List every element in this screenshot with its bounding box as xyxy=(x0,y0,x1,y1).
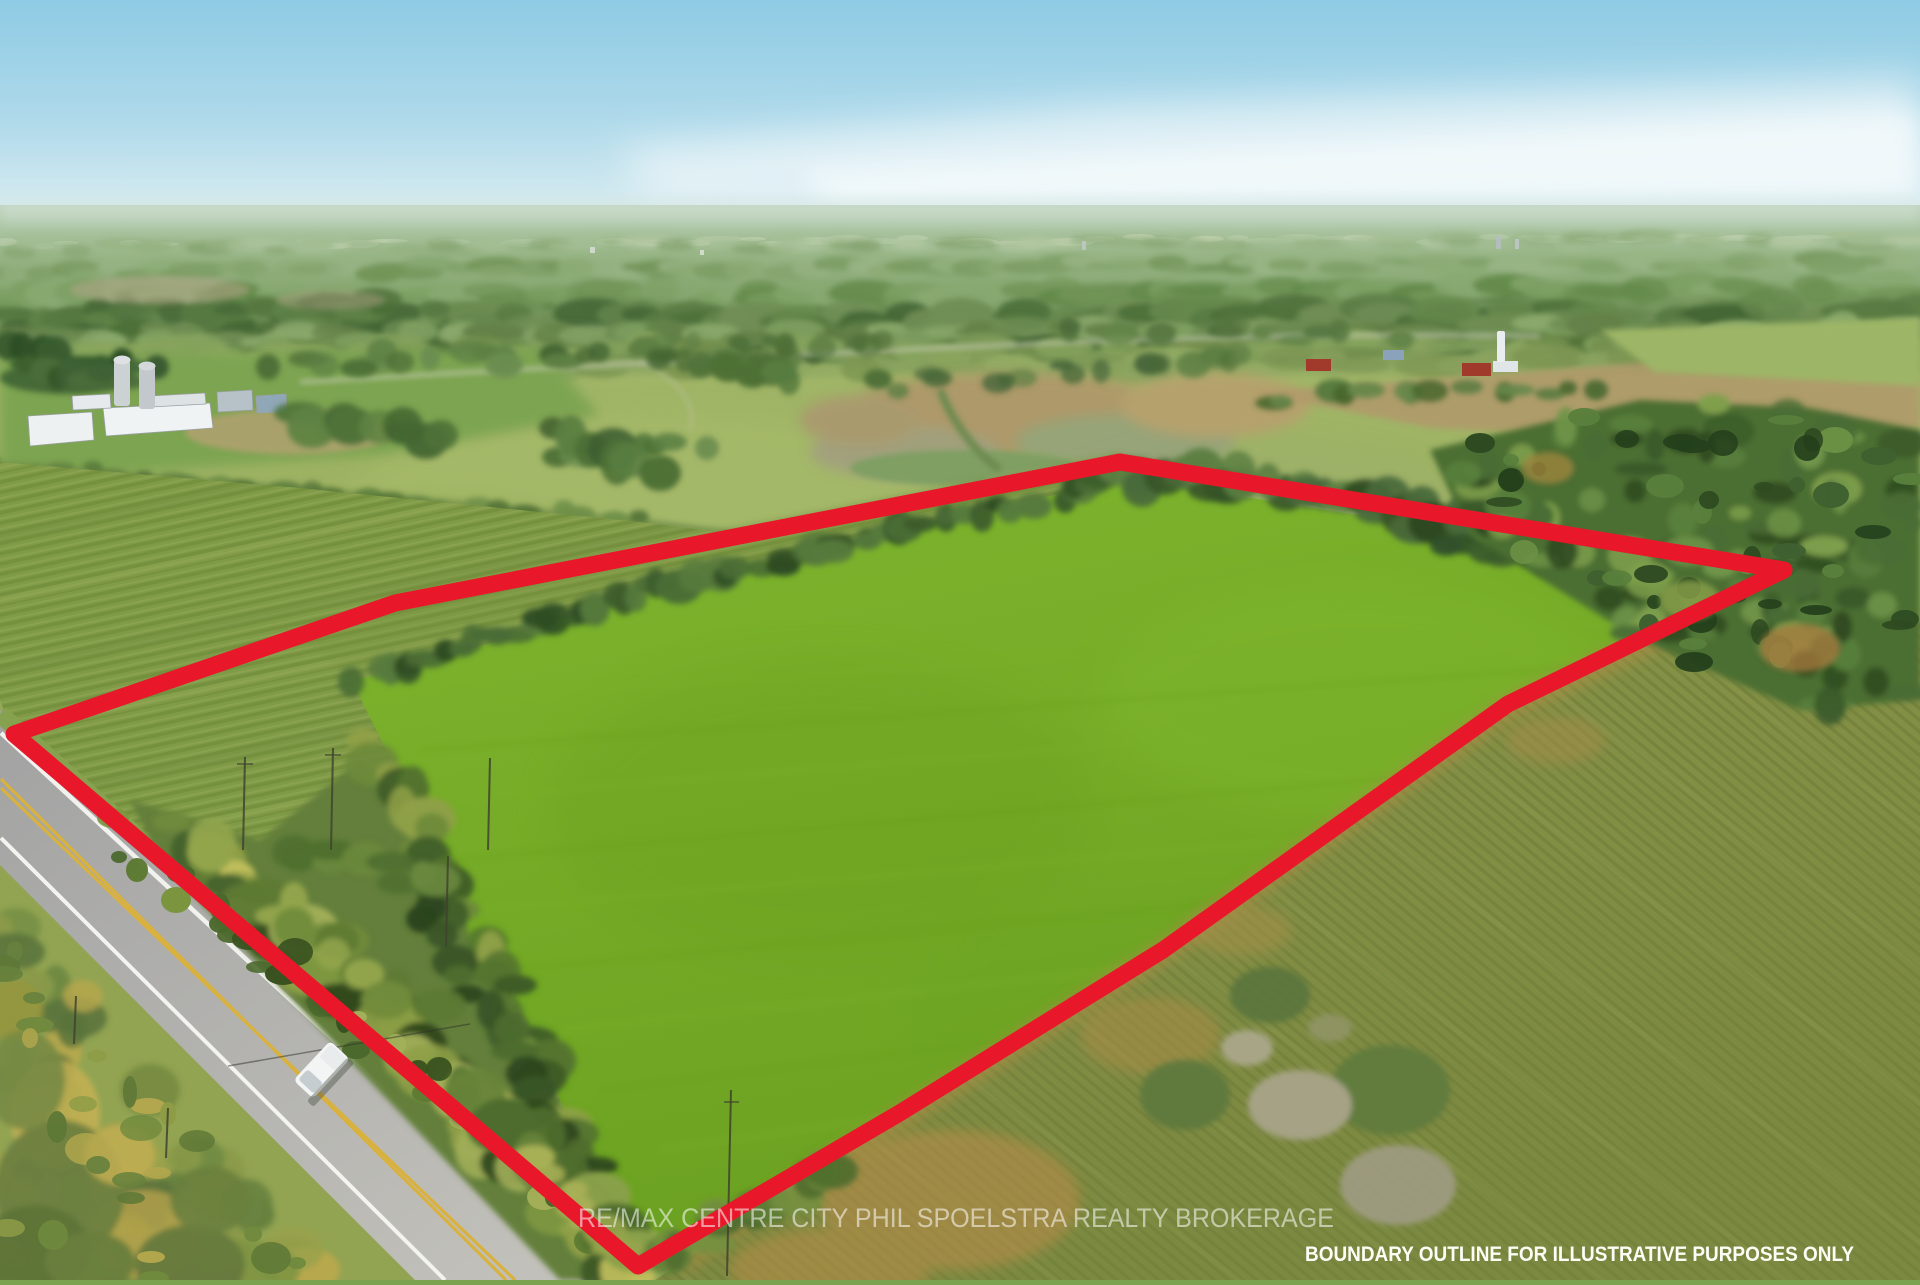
svg-text:BOUNDARY OUTLINE FOR ILLUSTRAT: BOUNDARY OUTLINE FOR ILLUSTRATIVE PURPOS… xyxy=(1305,1242,1854,1266)
svg-text:RE/MAX CENTRE CITY PHIL SPOELS: RE/MAX CENTRE CITY PHIL SPOELSTRA REALTY… xyxy=(578,1203,1334,1233)
